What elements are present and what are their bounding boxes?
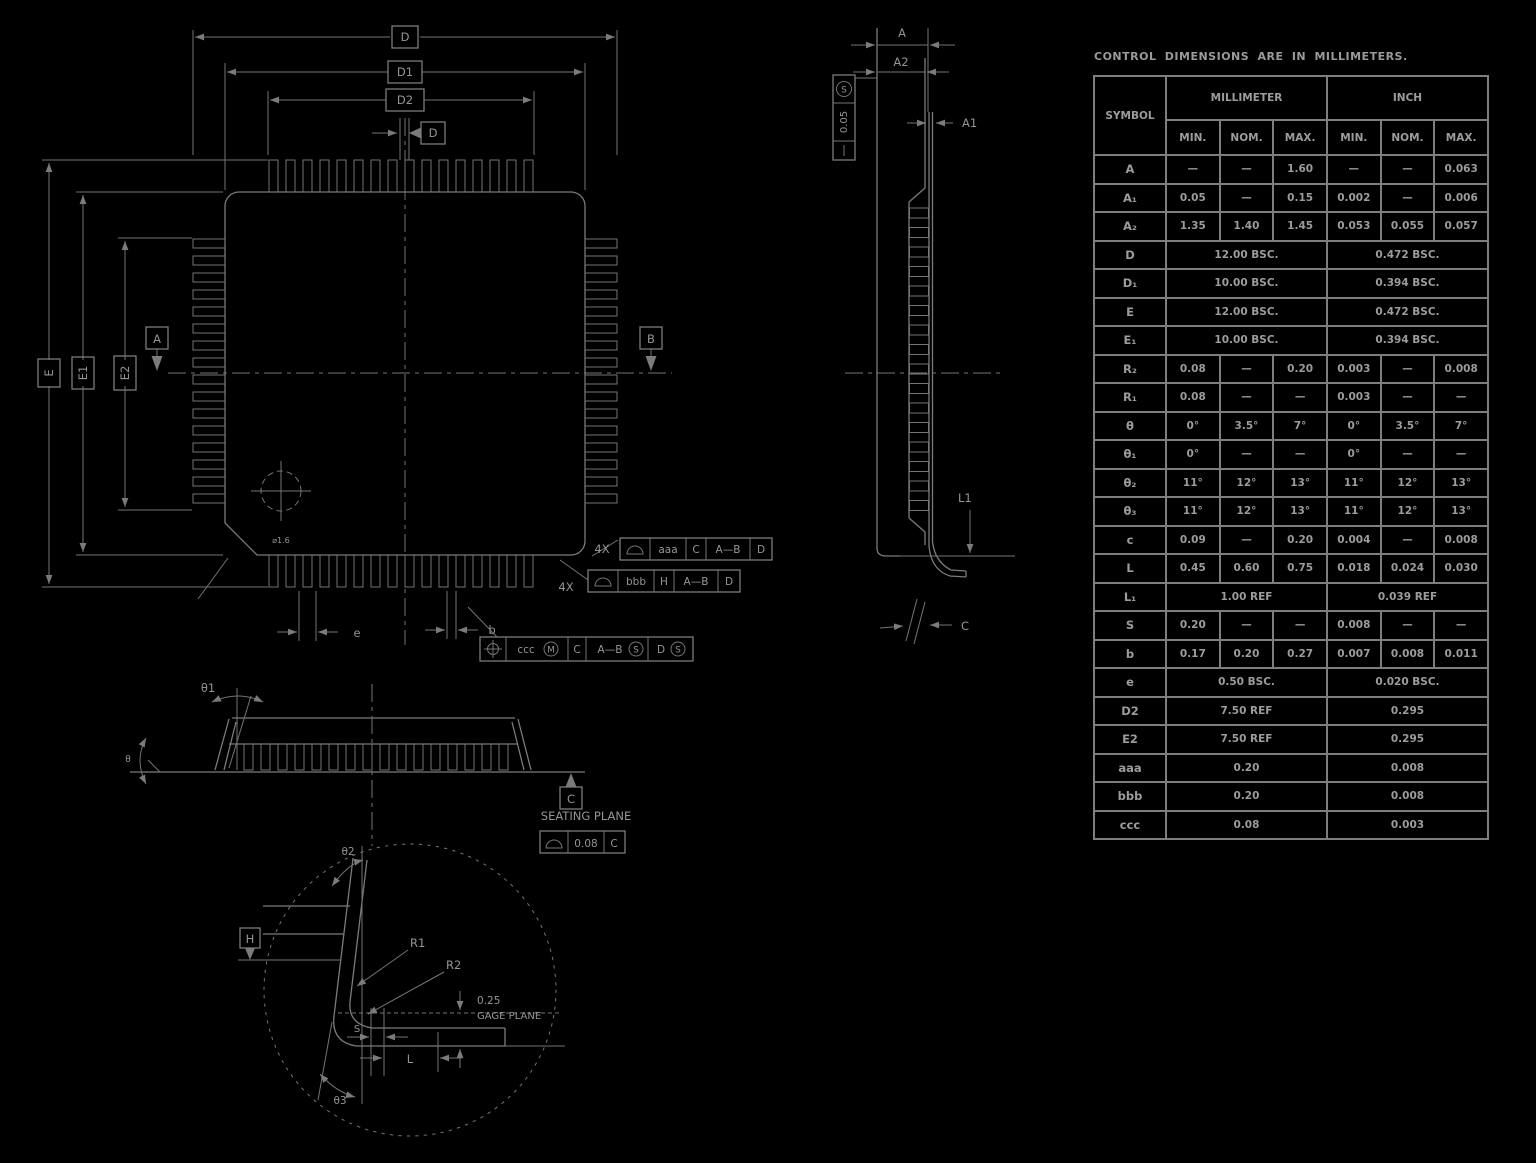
mm-value: 12.00 BSC. [1166, 298, 1327, 327]
bottom-lead-row [244, 744, 508, 770]
mm-value: 0.45 [1166, 554, 1220, 583]
fcf-bbb-datum2: A—B [684, 576, 709, 588]
inch-value: 0.008 [1381, 640, 1435, 669]
fcf-pos-mod2: S [633, 646, 639, 656]
inch-value: 0.394 BSC. [1327, 326, 1488, 355]
detail-circle [264, 844, 556, 1136]
datum-b-label: B [647, 332, 655, 346]
mm-value: — [1220, 184, 1274, 213]
dim-label-A2: A2 [893, 55, 908, 69]
symbol-cell: θ₂ [1094, 469, 1166, 498]
table-row: θ0°3.5°7°0°3.5°7° [1094, 412, 1488, 441]
table-row: D27.50 REF0.295 [1094, 697, 1488, 726]
inch-value: 0.003 [1327, 355, 1381, 384]
table-row: aaa0.200.008 [1094, 754, 1488, 783]
fcf-position: ccc M C A—B S D S [468, 607, 693, 661]
inch-value: 0.030 [1434, 554, 1488, 583]
inch-value: 0.057 [1434, 212, 1488, 241]
fcf-aaa-count: 4X [594, 542, 609, 556]
fcf-aaa-datum1: C [692, 544, 699, 556]
inch-value: 11° [1327, 497, 1381, 526]
table-row: θ₂11°12°13°11°12°13° [1094, 469, 1488, 498]
fcf-pos-tol: ccc [517, 644, 535, 656]
mm-value: 13° [1273, 497, 1327, 526]
symbol-cell: ccc [1094, 811, 1166, 840]
dim-label-D1: D1 [397, 65, 413, 79]
mm-value: 0.20 [1166, 611, 1220, 640]
table-row: E27.50 REF0.295 [1094, 725, 1488, 754]
symbol-cell: aaa [1094, 754, 1166, 783]
symbol-cell: E₁ [1094, 326, 1166, 355]
datum-c-flag: C [560, 773, 582, 809]
table-row: A₂1.351.401.450.0530.0550.057 [1094, 212, 1488, 241]
datum-d-flag: D [372, 118, 445, 160]
symbol-cell: e [1094, 668, 1166, 697]
inch-value: 0.004 [1327, 526, 1381, 555]
side-lead-profile [910, 208, 929, 511]
inch-value: 13° [1434, 469, 1488, 498]
inch-value: 11° [1327, 469, 1381, 498]
inch-value: — [1434, 611, 1488, 640]
fcf-pos-datum3: D [657, 644, 665, 656]
mm-value: — [1220, 155, 1274, 184]
symbol-cell: R₁ [1094, 383, 1166, 412]
mm-value: 0.20 [1273, 355, 1327, 384]
table-row: E₁10.00 BSC.0.394 BSC. [1094, 326, 1488, 355]
mm-value: 0.27 [1273, 640, 1327, 669]
inch-value: 0.008 [1327, 754, 1488, 783]
fcf-aaa-datum3: D [757, 544, 765, 556]
fcf-aaa-datum2: A—B [716, 544, 741, 556]
dim-label-E2: E2 [118, 366, 132, 381]
inch-value: — [1381, 383, 1435, 412]
inch-value: — [1434, 383, 1488, 412]
mm-value: 0.20 [1166, 754, 1327, 783]
symbol-cell: D [1094, 241, 1166, 270]
mm-value: 0.09 [1166, 526, 1220, 555]
datum-c-label: C [567, 792, 575, 806]
inch-value: 0.295 [1327, 725, 1488, 754]
table-row: A——1.60——0.063 [1094, 155, 1488, 184]
mm-value: 0.08 [1166, 355, 1220, 384]
inch-value: 7° [1434, 412, 1488, 441]
mm-value: 0° [1166, 440, 1220, 469]
mm-value: 12° [1220, 497, 1274, 526]
datum-a-flag: A [146, 327, 168, 371]
mm-value: 0.60 [1220, 554, 1274, 583]
inch-value: 13° [1434, 497, 1488, 526]
table-row: D₁10.00 BSC.0.394 BSC. [1094, 269, 1488, 298]
dim-label-S: S [354, 1024, 360, 1035]
symbol-cell: D₁ [1094, 269, 1166, 298]
fcf-pos-mod1: M [547, 646, 555, 656]
table-row: L₁1.00 REF0.039 REF [1094, 583, 1488, 612]
mm-value: — [1220, 383, 1274, 412]
mm-value: 11° [1166, 497, 1220, 526]
gage-plane-label: GAGE PLANE [477, 1011, 541, 1022]
inch-value: 0.055 [1381, 212, 1435, 241]
nom-header: NOM. [1381, 120, 1435, 155]
fcf-aaa: 4X aaa C A—B D [592, 538, 772, 560]
inch-value: — [1327, 155, 1381, 184]
table-title: CONTROL DIMENSIONS ARE IN MILLIMETERS. [1094, 50, 1490, 63]
dim-label-L: L [407, 1052, 414, 1066]
table-row: c0.09—0.200.004—0.008 [1094, 526, 1488, 555]
symbol-cell: E2 [1094, 725, 1166, 754]
symbol-cell: bbb [1094, 782, 1166, 811]
inch-value: 0.008 [1434, 526, 1488, 555]
symbol-cell: A [1094, 155, 1166, 184]
mm-value: 1.60 [1273, 155, 1327, 184]
inch-value: 0.011 [1434, 640, 1488, 669]
angle-label-theta3: θ3 [333, 1095, 346, 1107]
millimeter-header: MILLIMETER [1166, 76, 1327, 120]
mm-value: 10.00 BSC. [1166, 269, 1327, 298]
inch-value: 0.002 [1327, 184, 1381, 213]
inch-value: 0.024 [1381, 554, 1435, 583]
inch-value: — [1434, 440, 1488, 469]
symbol-cell: L [1094, 554, 1166, 583]
table-row: θ₃11°12°13°11°12°13° [1094, 497, 1488, 526]
profile-symbol-icon [595, 578, 611, 586]
fcf-seating-datum: C [610, 838, 617, 850]
inch-value: — [1381, 440, 1435, 469]
inch-value: — [1381, 184, 1435, 213]
inch-value: 0.020 BSC. [1327, 668, 1488, 697]
inch-value: 0.295 [1327, 697, 1488, 726]
symbol-cell: A₂ [1094, 212, 1166, 241]
table-row: R₁0.08——0.003—— [1094, 383, 1488, 412]
dim-label-E: E [42, 369, 56, 376]
inch-value: 12° [1381, 497, 1435, 526]
inch-value: — [1381, 526, 1435, 555]
fcf-pos-datum2: A—B [598, 644, 623, 656]
seating-plane-label: SEATING PLANE [541, 809, 631, 823]
dim-label-D2: D2 [397, 93, 413, 107]
symbol-cell: D2 [1094, 697, 1166, 726]
mm-value: 1.00 REF [1166, 583, 1327, 612]
mm-value: 0.08 [1166, 811, 1327, 840]
mm-value: 1.40 [1220, 212, 1274, 241]
table-row: e0.50 BSC.0.020 BSC. [1094, 668, 1488, 697]
inch-value: 0° [1327, 440, 1381, 469]
mm-value: 7° [1273, 412, 1327, 441]
dim-label-D: D [401, 30, 410, 44]
datum-b-flag: B [640, 327, 662, 371]
fcf-side-sym: S [841, 86, 847, 96]
inch-value: 0.008 [1327, 611, 1381, 640]
inch-value: 0.018 [1327, 554, 1381, 583]
symbol-cell: A₁ [1094, 184, 1166, 213]
mm-value: 0.20 [1220, 640, 1274, 669]
fcf-pos-datum1: C [573, 644, 580, 656]
profile-symbol-icon [546, 840, 562, 848]
table-row: b0.170.200.270.0070.0080.011 [1094, 640, 1488, 669]
mm-value: — [1273, 611, 1327, 640]
mm-value: 0.20 [1273, 526, 1327, 555]
dim-label-e: e [353, 626, 360, 640]
mm-value: — [1220, 526, 1274, 555]
angle-label-theta2: θ2 [341, 846, 354, 858]
mm-value: — [1166, 155, 1220, 184]
fcf-aaa-tol: aaa [658, 544, 677, 556]
fcf-bbb-datum3: D [725, 576, 733, 588]
drawing-sheet: D D1 D2 E E1 [0, 0, 1100, 1163]
datum-h-flag: H [240, 928, 260, 960]
mm-value: 7.50 REF [1166, 725, 1327, 754]
symbol-cell: R₂ [1094, 355, 1166, 384]
mm-value: 0.50 BSC. [1166, 668, 1327, 697]
inch-value: — [1381, 611, 1435, 640]
dimension-table-panel: CONTROL DIMENSIONS ARE IN MILLIMETERS. S… [1093, 50, 1490, 840]
symbol-cell: θ₁ [1094, 440, 1166, 469]
detail-view: H R1 R2 0.25 GAGE PLANE S L θ2 [238, 844, 565, 1136]
bottom-side-view: θ θ1 C SEATING PLANE 0.08 C [125, 681, 631, 853]
inch-value: 0.472 BSC. [1327, 241, 1488, 270]
inch-value: 0.394 BSC. [1327, 269, 1488, 298]
mm-value: 0.08 [1166, 383, 1220, 412]
angle-label-theta: θ [125, 755, 131, 765]
inch-value: — [1381, 155, 1435, 184]
gage-offset-value: 0.25 [477, 995, 500, 1007]
inch-value: — [1381, 355, 1435, 384]
table-row: ccc0.080.003 [1094, 811, 1488, 840]
inch-value: 0.472 BSC. [1327, 298, 1488, 327]
datum-d-label: D [429, 126, 438, 140]
mm-value: 0.20 [1166, 782, 1327, 811]
fcf-side-value: 0.05 [839, 111, 850, 133]
dim-label-A1: A1 [962, 116, 977, 130]
pin1-note: ⌀1.6 [272, 536, 290, 545]
profile-symbol-icon [627, 546, 643, 554]
nom-header: NOM. [1220, 120, 1274, 155]
inch-value: 0.007 [1327, 640, 1381, 669]
min-header: MIN. [1166, 120, 1220, 155]
mm-value: 0° [1166, 412, 1220, 441]
inch-value: 0.003 [1327, 383, 1381, 412]
mm-value: 10.00 BSC. [1166, 326, 1327, 355]
min-header: MIN. [1327, 120, 1381, 155]
table-row: bbb0.200.008 [1094, 782, 1488, 811]
inch-value: 0° [1327, 412, 1381, 441]
inch-value: 0.039 REF [1327, 583, 1488, 612]
mm-value: 12.00 BSC. [1166, 241, 1327, 270]
fcf-side-vertical: S 0.05 [833, 75, 877, 160]
mm-value: 3.5° [1220, 412, 1274, 441]
mm-value: 11° [1166, 469, 1220, 498]
position-symbol-icon [484, 640, 502, 658]
table-row: S0.20——0.008—— [1094, 611, 1488, 640]
datum-a-label: A [153, 332, 161, 346]
table-row: L0.450.600.750.0180.0240.030 [1094, 554, 1488, 583]
symbol-cell: b [1094, 640, 1166, 669]
inch-value: 3.5° [1381, 412, 1435, 441]
table-row: D12.00 BSC.0.472 BSC. [1094, 241, 1488, 270]
symbol-cell: S [1094, 611, 1166, 640]
mm-value: 1.45 [1273, 212, 1327, 241]
symbol-cell: c [1094, 526, 1166, 555]
table-row: A₁0.05—0.150.002—0.006 [1094, 184, 1488, 213]
package-outline-drawing: D D1 D2 E E1 [0, 0, 1536, 1163]
symbol-cell: θ₃ [1094, 497, 1166, 526]
pin1-indicator: ⌀1.6 [198, 461, 311, 599]
radius-label-R2: R2 [446, 958, 461, 972]
inch-value: 0.063 [1434, 155, 1488, 184]
radius-label-R1: R1 [410, 936, 425, 950]
fcf-seating-plane: 0.08 C [540, 831, 625, 853]
mm-value: 0.17 [1166, 640, 1220, 669]
angle-label-theta1: θ1 [201, 681, 215, 695]
table-row: E12.00 BSC.0.472 BSC. [1094, 298, 1488, 327]
fcf-pos-mod3: S [675, 646, 681, 656]
table-row: θ₁0°——0°—— [1094, 440, 1488, 469]
top-view: D D1 D2 E E1 [38, 26, 772, 661]
side-view: A A2 A1 S 0.05 L1 C [833, 26, 1015, 644]
fcf-seating-value: 0.08 [574, 838, 597, 850]
mm-value: — [1273, 383, 1327, 412]
mm-value: — [1220, 440, 1274, 469]
datum-h-label: H [246, 932, 255, 946]
symbol-cell: θ [1094, 412, 1166, 441]
inch-header: INCH [1327, 76, 1488, 120]
table-row: R₂0.08—0.200.003—0.008 [1094, 355, 1488, 384]
mm-value: 0.05 [1166, 184, 1220, 213]
mm-value: 12° [1220, 469, 1274, 498]
mm-value: 1.35 [1166, 212, 1220, 241]
inch-value: 0.008 [1327, 782, 1488, 811]
inch-value: 0.003 [1327, 811, 1488, 840]
symbol-cell: E [1094, 298, 1166, 327]
inch-value: 12° [1381, 469, 1435, 498]
fcf-bbb-tol: bbb [626, 576, 646, 588]
dim-label-c: C [961, 619, 969, 633]
dim-label-L1: L1 [958, 491, 972, 505]
mm-value: 7.50 REF [1166, 697, 1327, 726]
fcf-bbb-count: 4X [558, 580, 573, 594]
max-header: MAX. [1434, 120, 1488, 155]
dimension-table: SYMBOL MILLIMETER INCH MIN. NOM. MAX. MI… [1093, 75, 1489, 840]
symbol-cell: L₁ [1094, 583, 1166, 612]
inch-value: 0.053 [1327, 212, 1381, 241]
mm-value: 13° [1273, 469, 1327, 498]
mm-value: — [1273, 440, 1327, 469]
inch-value: 0.008 [1434, 355, 1488, 384]
max-header: MAX. [1273, 120, 1327, 155]
mm-value: 0.15 [1273, 184, 1327, 213]
mm-value: — [1220, 355, 1274, 384]
mm-value: 0.75 [1273, 554, 1327, 583]
fcf-bbb: 4X bbb H A—B D [558, 560, 740, 594]
dim-label-A: A [898, 26, 906, 40]
dim-label-E1: E1 [76, 366, 90, 381]
inch-value: 0.006 [1434, 184, 1488, 213]
mm-value: — [1220, 611, 1274, 640]
symbol-header: SYMBOL [1094, 76, 1166, 155]
fcf-bbb-datum1: H [660, 576, 668, 588]
